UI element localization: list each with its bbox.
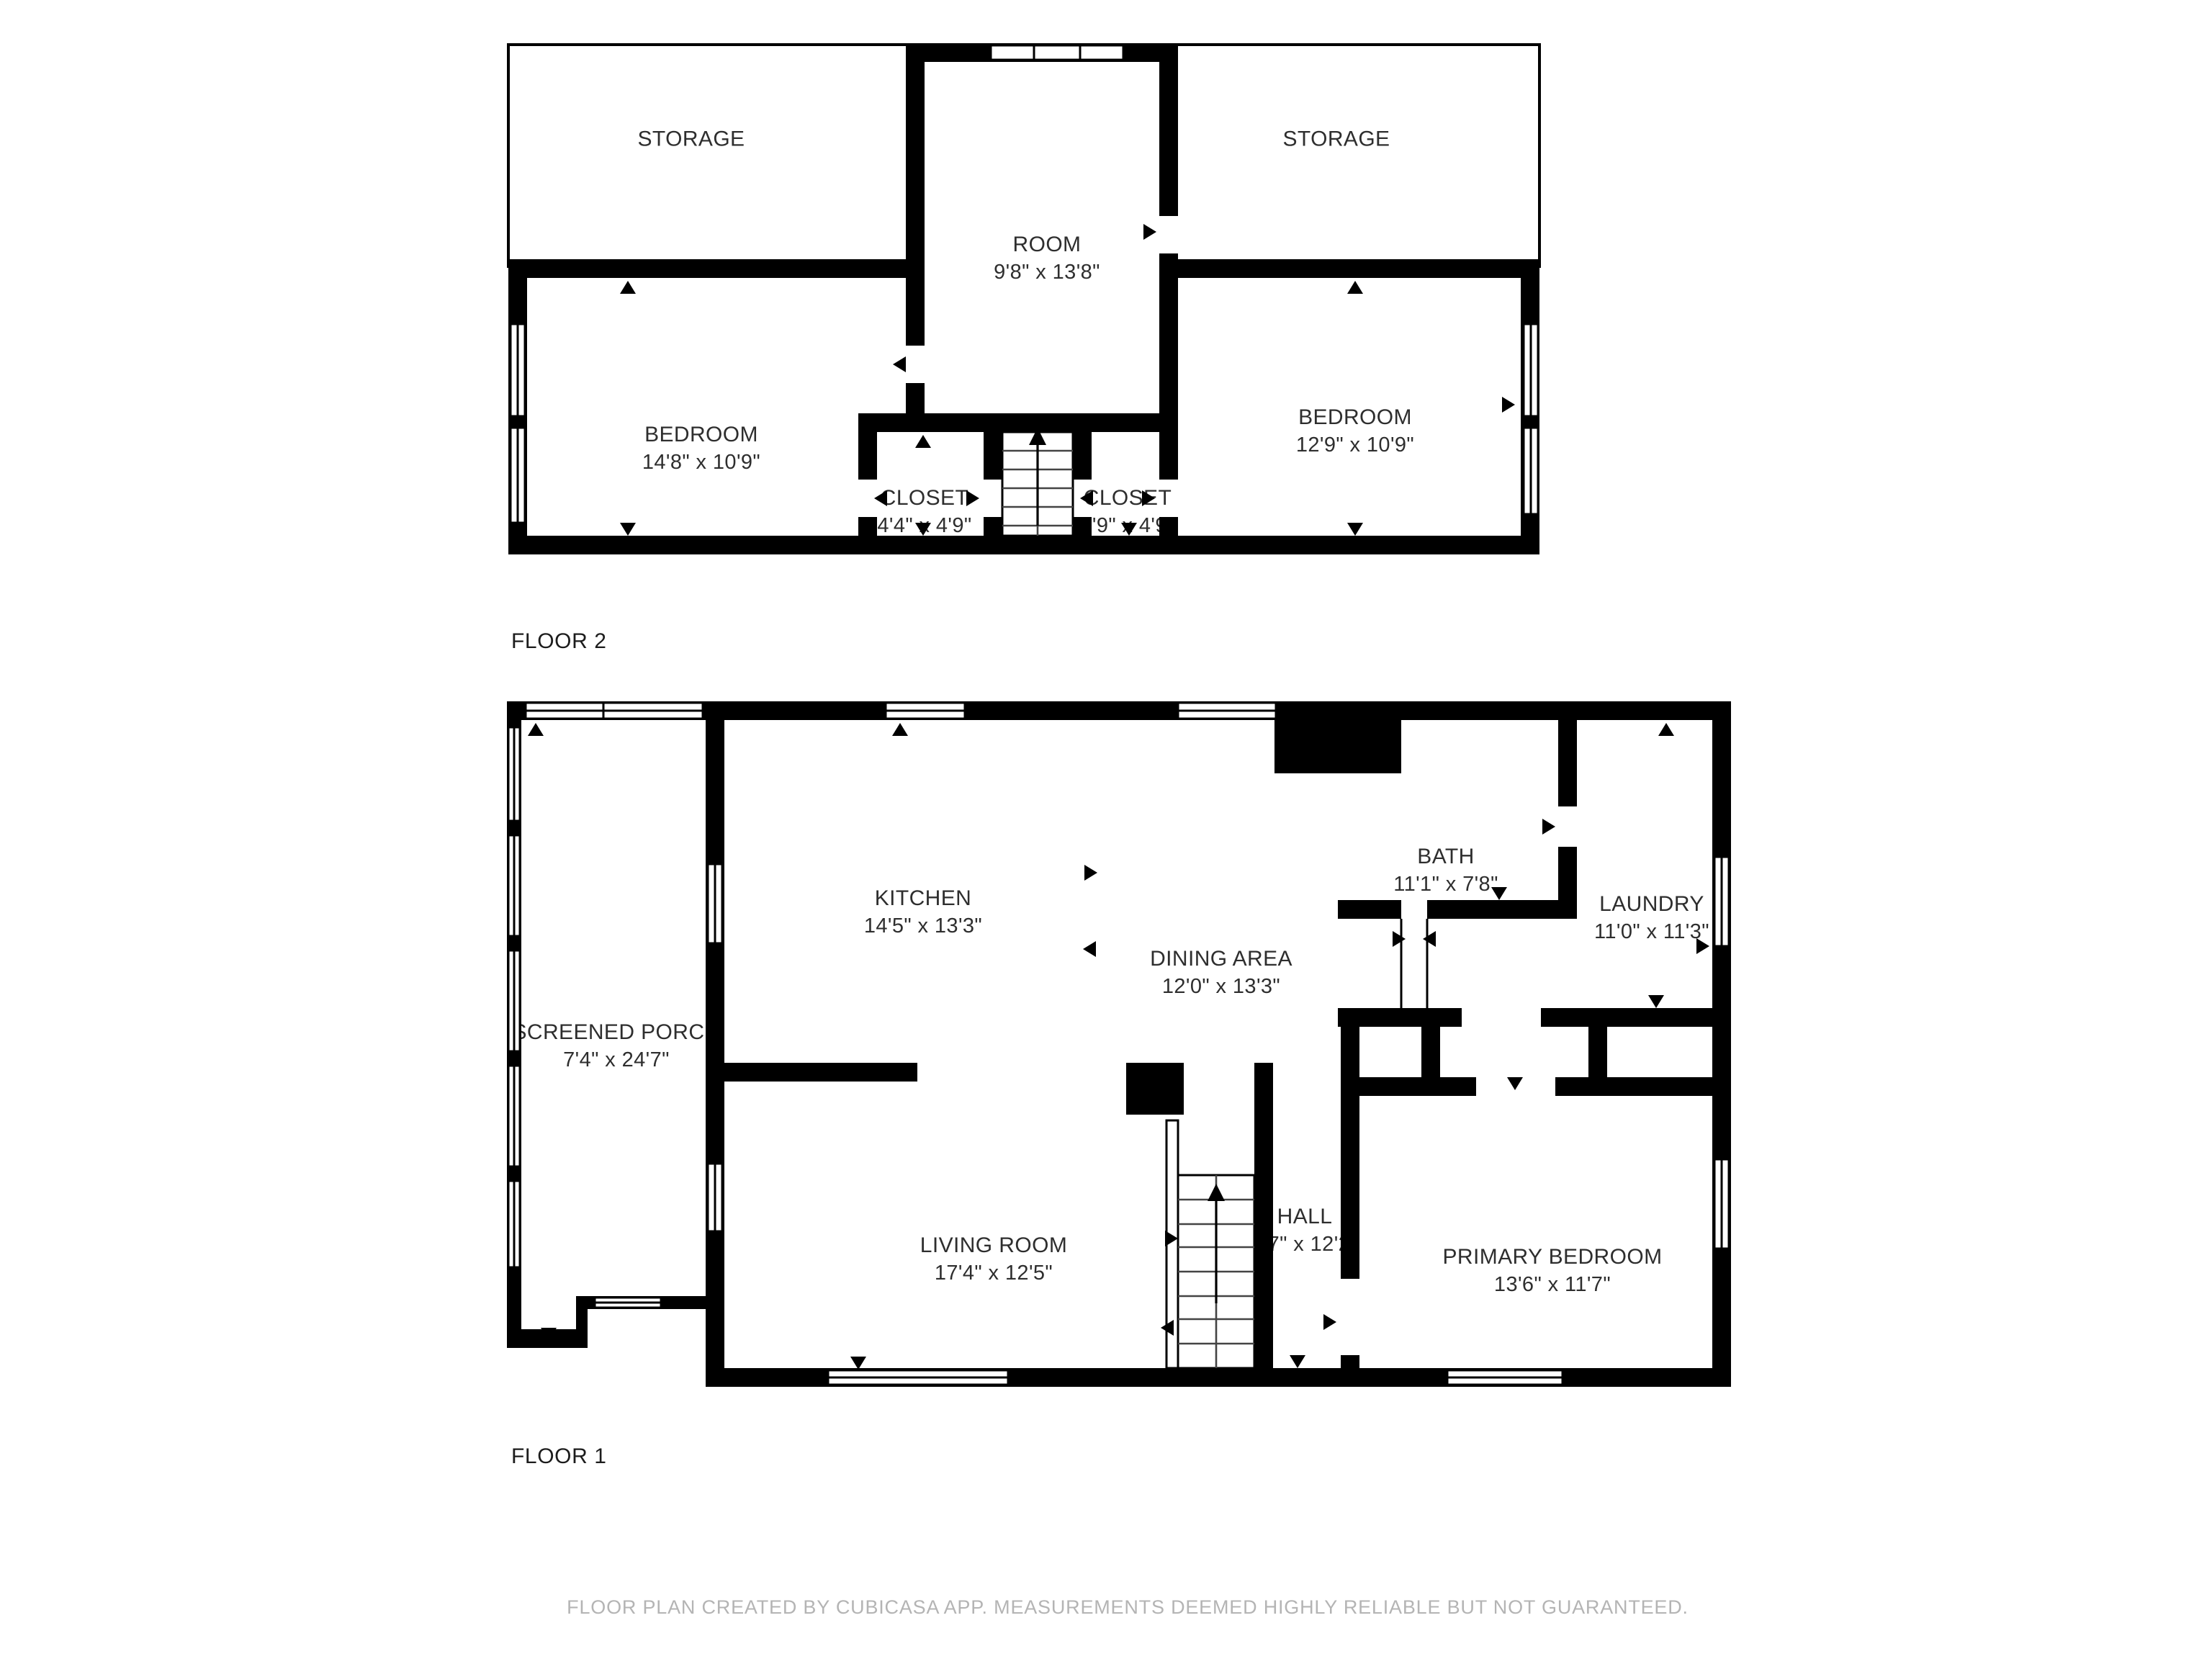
room-label-kitchen: KITCHEN 14'5" x 13'3" bbox=[864, 885, 982, 941]
room-label-bedroom-left: BEDROOM 14'8" x 10'9" bbox=[642, 421, 760, 477]
attribution-text: FLOOR PLAN CREATED BY CUBICASA APP. MEAS… bbox=[567, 1596, 1689, 1618]
floor1-title: FLOOR 1 bbox=[511, 1444, 607, 1469]
room-labels-layer: STORAGE STORAGE ROOM 9'8" x 13'8" BEDROO… bbox=[0, 0, 2212, 1659]
room-label-storage-right: STORAGE bbox=[1283, 126, 1390, 154]
room-label-bath: BATH 11'1" x 7'8" bbox=[1393, 843, 1498, 899]
room-label-room: ROOM 9'8" x 13'8" bbox=[994, 231, 1100, 287]
room-label-screened-porch: SCREENED PORCH 7'4" x 24'7" bbox=[513, 1019, 721, 1075]
room-label-closet-left: CLOSET 4'4" x 4'9" bbox=[877, 485, 971, 541]
floorplan-page: STORAGE STORAGE ROOM 9'8" x 13'8" BEDROO… bbox=[0, 0, 2212, 1659]
floor2-title: FLOOR 2 bbox=[511, 629, 607, 654]
floorplan-canvas: STORAGE STORAGE ROOM 9'8" x 13'8" BEDROO… bbox=[0, 0, 2212, 1659]
room-label-storage-left: STORAGE bbox=[638, 126, 745, 154]
room-label-hall: HALL 5'7" x 12'2" bbox=[1251, 1203, 1358, 1259]
room-label-primary-bedroom: PRIMARY BEDROOM 13'6" x 11'7" bbox=[1443, 1244, 1663, 1300]
room-label-laundry: LAUNDRY 11'0" x 11'3" bbox=[1594, 891, 1709, 947]
room-label-bedroom-right: BEDROOM 12'9" x 10'9" bbox=[1296, 404, 1414, 460]
room-label-closet-right: CLOSET 3'9" x 4'9" bbox=[1080, 485, 1174, 541]
room-label-living-room: LIVING ROOM 17'4" x 12'5" bbox=[920, 1232, 1067, 1288]
room-label-dining-area: DINING AREA 12'0" x 13'3" bbox=[1150, 945, 1292, 1002]
